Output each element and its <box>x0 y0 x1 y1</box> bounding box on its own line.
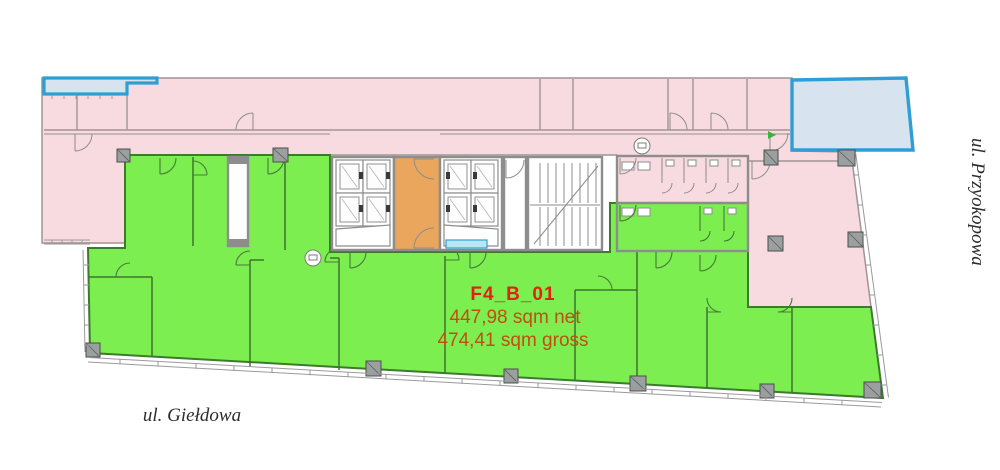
column <box>117 149 130 162</box>
elevator-bank-left <box>332 157 394 250</box>
floor-plan-page: F4_B_01 447,98 sqm net 474,41 sqm gross … <box>0 0 1000 470</box>
unit-id-label: F4_B_01 <box>470 284 555 305</box>
net-area-label: 447,98 sqm net <box>450 307 582 328</box>
fixture-symbol-icon <box>305 250 321 266</box>
elevator-lobby <box>394 157 440 250</box>
floor-plan-canvas: F4_B_01 447,98 sqm net 474,41 sqm gross … <box>0 0 1000 470</box>
column <box>848 232 863 247</box>
fixture-symbol-icon <box>634 138 650 154</box>
core-hall <box>504 157 526 250</box>
service-shaft <box>228 157 248 246</box>
elevator-bank-right <box>440 157 502 250</box>
column <box>838 150 855 166</box>
column <box>768 236 783 251</box>
column <box>764 150 778 165</box>
terrace-top-right <box>792 78 913 150</box>
column <box>273 148 288 162</box>
column <box>864 382 881 398</box>
street-label-przyokopowa: ul. Przyokopowa <box>967 138 988 266</box>
elevator-lobby-floor <box>394 157 440 250</box>
street-label-gieldowa: ul. Giełdowa <box>143 405 241 426</box>
window-strip <box>446 240 487 248</box>
stairwell <box>528 157 602 250</box>
gross-area-label: 474,41 sqm gross <box>437 330 588 351</box>
